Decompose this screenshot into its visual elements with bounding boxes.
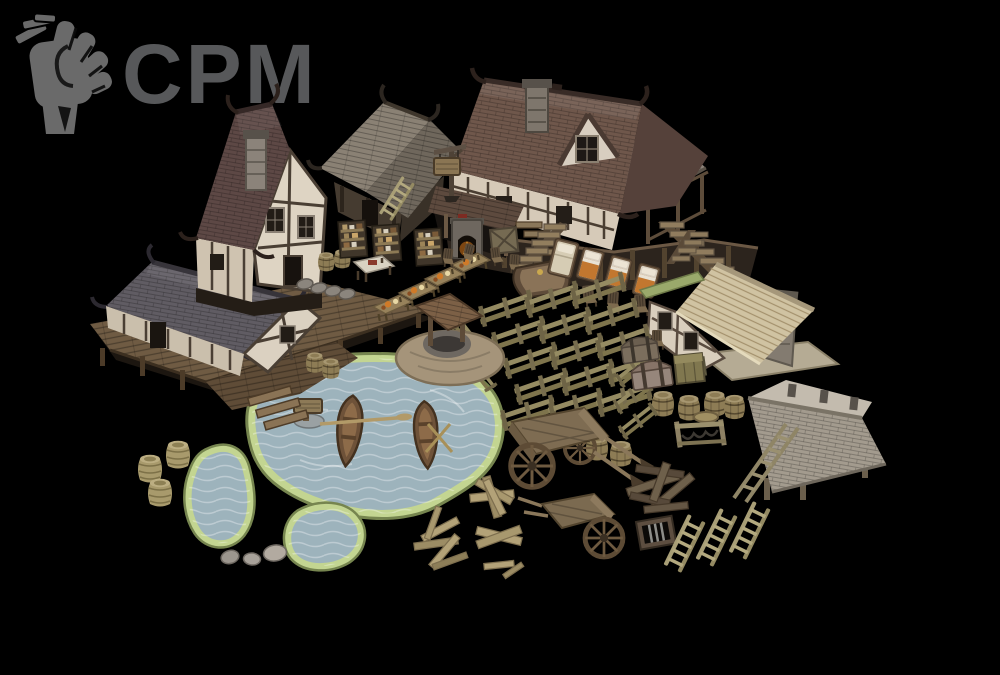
shelf-unit	[338, 220, 367, 258]
townhouse-chimney	[243, 130, 269, 190]
asset-pack-poster: CPM	[0, 0, 1000, 675]
shelf-unit	[372, 224, 401, 262]
tavern-chimney	[522, 79, 552, 132]
pond-1	[189, 449, 251, 543]
window-grate	[636, 516, 676, 550]
pond-2	[288, 507, 361, 566]
barrel-lid	[694, 412, 718, 422]
crate	[674, 353, 705, 384]
scene-svg: CPM	[0, 0, 1000, 675]
shelf-unit	[414, 228, 443, 266]
logo-text: CPM	[122, 27, 318, 121]
